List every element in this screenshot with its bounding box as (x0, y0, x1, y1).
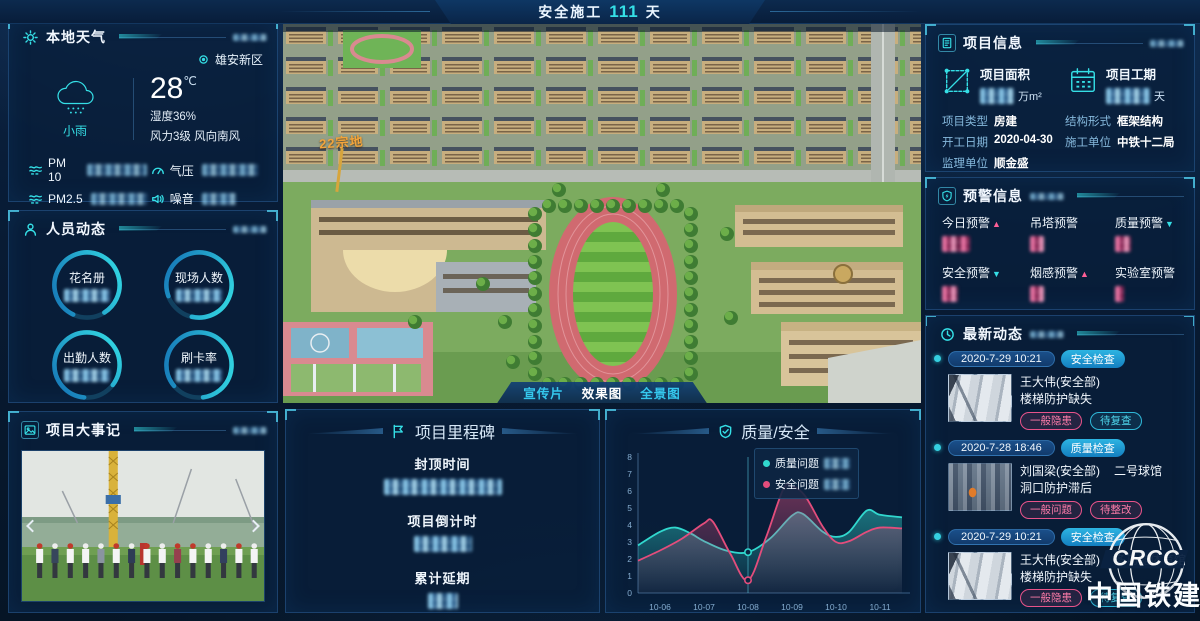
noise-label: 噪音 (170, 190, 194, 207)
field-contractor: 施工单位中铁十二局 (1065, 134, 1186, 150)
issue-level-tag: 一般问题 (1020, 501, 1082, 519)
duration-unit: 天 (1154, 88, 1165, 104)
header-wing (817, 428, 895, 434)
warning-today: 今日预警▲ (942, 214, 1030, 252)
trend-arrow: ▲ (992, 219, 1001, 229)
warning-value-blur (942, 286, 958, 302)
header-wing (305, 428, 383, 434)
clock-icon (938, 325, 956, 343)
ring-label: 出勤人数 (63, 349, 111, 366)
view-switcher: 宣传片 效果图 全景图 (497, 382, 707, 403)
issue-text: 洞口防护滞后 (1020, 480, 1162, 497)
issue-text: 楼梯防护缺失 (1020, 391, 1142, 408)
ring-value-blur (64, 369, 110, 382)
svg-text:10-08: 10-08 (737, 602, 759, 612)
timeline-dot (934, 444, 941, 451)
events-panel: 项目大事记 (8, 411, 278, 613)
chart-tooltip: 质量问题 安全问题 (754, 448, 859, 499)
personnel-panel-title: 人员动态 (46, 219, 106, 239)
photo-icon (21, 421, 39, 439)
svg-text:10-06: 10-06 (649, 602, 671, 612)
ring-label: 现场人数 (175, 269, 223, 286)
kpi-ring-roster: 花名册 (48, 247, 126, 323)
pm10-label: PM 10 (48, 156, 79, 184)
pm25-value-blur (91, 193, 147, 205)
header-line (1077, 334, 1184, 335)
banner-decoration (280, 11, 430, 12)
issue-status-tag: 待整改 (1090, 501, 1142, 519)
issue-level-tag: 一般隐患 (1020, 589, 1082, 607)
weather-panel-title: 本地天气 (46, 27, 106, 47)
svg-text:10-07: 10-07 (693, 602, 715, 612)
area-icon (942, 66, 972, 96)
issue-status-tag: 待复查 (1090, 589, 1142, 607)
area-label: 项目面积 (980, 64, 1042, 83)
svg-text:10-09: 10-09 (781, 602, 803, 612)
milestone-panel-title: 项目里程碑 (415, 419, 495, 443)
banner-prefix: 安全施工 (538, 2, 602, 22)
header-timestamp-blur (233, 427, 267, 434)
timeline-dot (934, 355, 941, 362)
warning-value-blur (1030, 286, 1044, 302)
warning-value-blur (942, 236, 970, 252)
header-wing (631, 428, 709, 434)
person-icon (21, 220, 39, 238)
tooltip-safety-row: 安全问题 (763, 476, 850, 492)
view-btn-panorama[interactable]: 全景图 (640, 383, 681, 402)
pm25-metric: PM2.5 (29, 190, 147, 207)
header-line (119, 229, 226, 230)
field-supervisor: 监理单位顺金盛 (942, 155, 1063, 171)
duration-value-blur (1106, 88, 1150, 104)
ring-label: 花名册 (69, 269, 105, 286)
timeline-dot (934, 533, 941, 540)
header-timestamp-blur (1030, 193, 1064, 200)
warning-smoke: 烟感预警▲ (1030, 264, 1115, 302)
ring-value-blur (64, 289, 110, 302)
header-line (134, 430, 226, 431)
warning-quality: 质量预警▼ (1115, 214, 1200, 252)
inspector-name: 王大伟(安全部) (1020, 375, 1100, 389)
weather-panel: 本地天气 雄安新区 小雨 28℃ 湿度36% 风力3级 风向南风 (8, 18, 278, 202)
location-pin-icon (197, 53, 210, 66)
view-btn-render[interactable]: 效果图 (582, 383, 623, 402)
milestone-value-blur (384, 479, 502, 495)
milestone-countdown: 项目倒计时 (286, 511, 599, 557)
header-timestamp-blur (1150, 40, 1184, 47)
pressure-metric: 气压 (151, 156, 265, 184)
inspection-photo (948, 552, 1012, 600)
news-type-badge: 安全检查 (1061, 350, 1125, 368)
weather-condition: 小雨 (33, 79, 117, 139)
banner-suffix: 天 (646, 2, 662, 22)
district-label: 雄安新区 (215, 51, 263, 68)
safety-series-label: 安全问题 (775, 476, 819, 492)
news-type-badge: 安全检查 (1061, 528, 1125, 546)
tooltip-value-blur (824, 479, 850, 490)
mist-icon (29, 193, 43, 205)
header-line (119, 37, 226, 38)
warning-crane: 吊塔预警 (1030, 214, 1115, 252)
trend-arrow: ▼ (992, 269, 1001, 279)
info-panel-title: 项目信息 (963, 33, 1023, 53)
warning-lab: 实验室预警 (1115, 264, 1200, 302)
inspection-photo (948, 463, 1012, 511)
header-line (1077, 196, 1184, 197)
site-render (283, 22, 921, 403)
warning-value-blur (1115, 236, 1131, 252)
site-3d-view[interactable]: 22宗地 宣传片 效果图 全景图 (283, 22, 921, 403)
field-start-date: 开工日期2020-04-30 (942, 134, 1063, 150)
alert-bolt-icon (938, 187, 956, 205)
gauge-icon (151, 164, 165, 176)
project-area-block: 项目面积 万m² (942, 64, 1058, 104)
ring-value-blur (176, 289, 222, 302)
news-item[interactable]: 2020-7-28 18:46 质量检查 刘国梁(安全部)二号球馆 洞口防护滞后… (936, 439, 1186, 519)
safety-days-banner: 安全施工 111 天 (435, 0, 765, 24)
banner-decoration (770, 11, 920, 12)
svg-text:7: 7 (627, 469, 632, 479)
milestone-value-blur (414, 536, 472, 552)
field-project-type: 项目类型房建 (942, 113, 1063, 129)
group-photo (22, 451, 264, 601)
inspector-name: 王大伟(安全部) (1020, 553, 1100, 567)
inspector-name: 刘国梁(安全部) (1020, 464, 1100, 478)
event-photo (21, 450, 265, 602)
tooltip-value-blur (824, 458, 850, 469)
wind-label: 风力3级 风向南风 (150, 128, 240, 144)
banner-days: 111 (609, 2, 639, 22)
events-panel-title: 项目大事记 (46, 420, 121, 440)
pm10-metric: PM 10 (29, 156, 147, 184)
milestone-label: 累计延期 (286, 568, 599, 587)
news-item[interactable]: 2020-7-29 10:21 安全检查 王大伟(安全部) 楼梯防护缺失 一般隐… (936, 350, 1186, 430)
condition-label: 小雨 (33, 122, 117, 139)
milestone-label: 项目倒计时 (286, 511, 599, 530)
flag-icon (390, 422, 408, 440)
humidity-label: 湿度36% (150, 108, 240, 124)
issue-text: 楼梯防护缺失 (1020, 569, 1186, 586)
trend-arrow: ▼ (1165, 219, 1174, 229)
quality-panel-title: 质量/安全 (741, 419, 809, 443)
divider (133, 78, 134, 140)
svg-text:1: 1 (627, 571, 632, 581)
project-info-panel: 项目信息 项目面积 万m² (925, 24, 1195, 172)
issue-status-tag: 待复查 (1090, 412, 1142, 430)
svg-text:0: 0 (627, 588, 632, 598)
pm10-value-blur (87, 164, 146, 176)
area-unit: 万m² (1018, 88, 1042, 104)
milestone-delay: 累计延期 (286, 568, 599, 614)
warning-value-blur (1030, 236, 1044, 252)
news-panel: 最新动态 2020-7-29 10:21 安全检查 王大伟(安全部) 楼梯防护缺… (925, 315, 1195, 613)
noise-metric: 噪音 (151, 190, 265, 207)
sun-icon (21, 28, 39, 46)
news-time: 2020-7-29 10:21 (948, 529, 1055, 545)
tooltip-quality-row: 质量问题 (763, 455, 850, 471)
safety-series-dot (763, 481, 770, 488)
svg-text:4: 4 (627, 520, 632, 530)
warnings-panel-title: 预警信息 (963, 186, 1023, 206)
kpi-ring-swipe-rate: 刷卡率 (160, 327, 238, 403)
quality-series-label: 质量问题 (775, 455, 819, 471)
dashboard: 22宗地 宣传片 效果图 全景图 安全施工 111 天 本地天气 (0, 0, 1200, 621)
news-time: 2020-7-28 18:46 (948, 440, 1055, 456)
quality-safety-panel: 质量/安全 01234567810-0610-0710-0810-0910-10… (605, 409, 921, 613)
pressure-label: 气压 (170, 162, 194, 179)
header-line (1036, 43, 1143, 44)
news-panel-title: 最新动态 (963, 324, 1023, 344)
svg-text:10-11: 10-11 (869, 602, 890, 612)
ring-value-blur (176, 369, 222, 382)
inspection-location: 多功能体育馆 (1114, 553, 1186, 567)
inspection-photo (948, 374, 1012, 422)
temperature-value: 28 (150, 72, 183, 105)
news-time: 2020-7-29 10:21 (948, 351, 1055, 367)
view-btn-promo[interactable]: 宣传片 (523, 383, 564, 402)
svg-text:5: 5 (627, 503, 632, 513)
svg-text:6: 6 (627, 486, 632, 496)
kpi-ring-onsite: 现场人数 (160, 247, 238, 323)
header-timestamp-blur (1030, 331, 1064, 338)
svg-text:10-10: 10-10 (825, 602, 847, 612)
pm25-label: PM2.5 (48, 192, 83, 206)
field-structure: 结构形式框架结构 (1065, 113, 1186, 129)
area-value-blur (980, 88, 1014, 104)
svg-text:2: 2 (627, 554, 632, 564)
duration-label: 项目工期 (1106, 64, 1165, 83)
milestone-topping-date: 封顶时间 (286, 454, 599, 500)
speaker-icon (151, 193, 165, 205)
pressure-value-blur (202, 164, 258, 176)
milestone-value-blur (428, 593, 458, 609)
warning-value-blur (1115, 286, 1124, 302)
document-icon (938, 34, 956, 52)
trend-arrow: ▲ (1080, 269, 1089, 279)
warning-safety: 安全预警▼ (942, 264, 1030, 302)
milestone-label: 封顶时间 (286, 454, 599, 473)
kpi-ring-attendance: 出勤人数 (48, 327, 126, 403)
cloud-rain-icon (47, 79, 103, 115)
milestone-panel: 项目里程碑 封顶时间 项目倒计时 累计延期 (285, 409, 600, 613)
quality-series-dot (763, 460, 770, 467)
inspection-location: 二号球馆 (1114, 464, 1162, 478)
ring-label: 刷卡率 (181, 349, 217, 366)
shield-check-icon (716, 422, 734, 440)
header-timestamp-blur (233, 34, 267, 41)
project-duration-block: 项目工期 天 (1068, 64, 1184, 104)
svg-text:8: 8 (627, 452, 632, 462)
news-item[interactable]: 2020-7-29 10:21 安全检查 王大伟(安全部)多功能体育馆 楼梯防护… (936, 528, 1186, 608)
header-timestamp-blur (233, 226, 267, 233)
noise-value-blur (202, 193, 236, 205)
news-type-badge: 质量检查 (1061, 439, 1125, 457)
svg-text:3: 3 (627, 537, 632, 547)
temperature-unit: ℃ (183, 74, 196, 88)
calendar-icon (1068, 66, 1098, 96)
issue-level-tag: 一般隐患 (1020, 412, 1082, 430)
personnel-panel: 人员动态 花名册 现场人数 出勤人数 刷卡率 (8, 210, 278, 403)
top-bar: 安全施工 111 天 (0, 0, 1200, 24)
warnings-panel: 预警信息 今日预警▲ 吊塔预警 质量预警▼ 安全预警▼ 烟感预警▲ (925, 177, 1195, 310)
header-wing (502, 428, 580, 434)
mist-icon (29, 164, 43, 176)
